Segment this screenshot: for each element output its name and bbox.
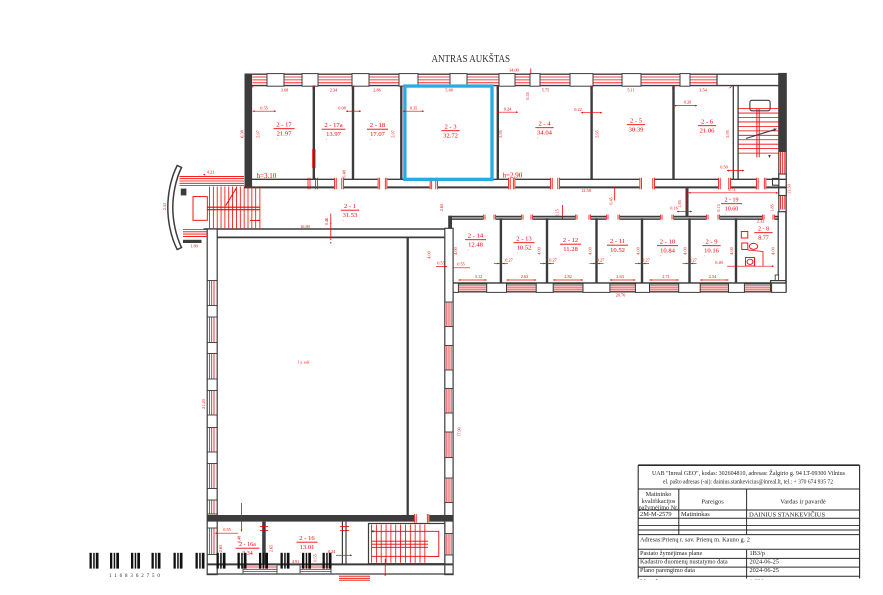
svg-text:2 - 18: 2 - 18	[370, 122, 386, 129]
svg-text:2 - 17a: 2 - 17a	[324, 122, 342, 129]
svg-text:4.00: 4.00	[771, 247, 776, 255]
svg-text:2 - 12: 2 - 12	[563, 237, 578, 244]
svg-text:17.07: 17.07	[370, 131, 386, 138]
svg-text:5.48: 5.48	[445, 88, 453, 93]
svg-text:4.91: 4.91	[292, 559, 300, 564]
svg-text:5.95: 5.95	[498, 130, 503, 138]
svg-text:0.55: 0.55	[525, 92, 530, 100]
svg-text:Plano parengimo data: Plano parengimo data	[640, 567, 695, 574]
svg-text:5.75: 5.75	[542, 88, 550, 93]
svg-text:1168362750: 1168362750	[109, 574, 163, 579]
svg-text:2 - 9: 2 - 9	[705, 239, 718, 246]
svg-text:2 - 4: 2 - 4	[538, 121, 551, 128]
svg-text:0.55: 0.55	[457, 262, 465, 267]
svg-text:13.97: 13.97	[326, 131, 342, 138]
svg-text:2 - 5: 2 - 5	[630, 118, 643, 125]
svg-text:21.06: 21.06	[700, 128, 716, 135]
svg-text:Pareigos: Pareigos	[701, 498, 724, 505]
svg-text:0.55: 0.55	[260, 105, 268, 110]
svg-text:10.16: 10.16	[704, 248, 720, 255]
svg-text:0.27: 0.27	[505, 258, 513, 263]
svg-text:0.27: 0.27	[689, 258, 697, 263]
svg-text:DAINIUS STANKEVIČIUS: DAINIUS STANKEVIČIUS	[749, 511, 826, 519]
svg-text:2.65: 2.65	[218, 545, 223, 553]
svg-text:4.00: 4.00	[729, 247, 734, 255]
svg-text:0.22: 0.22	[574, 107, 582, 112]
svg-text:h=3.10: h=3.10	[257, 172, 277, 180]
svg-text:2 - 8: 2 - 8	[758, 227, 769, 233]
svg-text:10.52: 10.52	[610, 247, 625, 254]
svg-text:ANTRAS AUKŠTAS: ANTRAS AUKŠTAS	[432, 53, 511, 65]
svg-text:13.01: 13.01	[300, 544, 315, 551]
svg-text:2024-06-25: 2024-06-25	[750, 558, 779, 565]
svg-text:2.82: 2.82	[564, 274, 572, 279]
svg-text:2 - 16a: 2 - 16a	[239, 542, 256, 548]
svg-text:2.71: 2.71	[662, 274, 670, 279]
svg-text:1.85: 1.85	[770, 204, 775, 212]
svg-text:5.97: 5.97	[256, 129, 261, 137]
svg-text:16.80: 16.80	[300, 224, 310, 229]
svg-text:2 - 11: 2 - 11	[610, 238, 625, 245]
svg-text:0.15: 0.15	[716, 204, 721, 212]
svg-text:5.73: 5.73	[728, 187, 736, 192]
svg-text:2M-M-2579: 2M-M-2579	[640, 511, 672, 518]
svg-text:Kadastro duomenų nustatymo dat: Kadastro duomenų nustatymo data	[640, 558, 728, 565]
svg-text:5.95: 5.95	[595, 130, 600, 138]
svg-text:2.52: 2.52	[162, 203, 167, 211]
svg-text:13.50: 13.50	[787, 184, 792, 194]
svg-text:0.35: 0.35	[410, 105, 418, 110]
svg-text:32.72: 32.72	[443, 133, 458, 140]
svg-text:0.48: 0.48	[342, 170, 347, 178]
svg-text:21.97: 21.97	[277, 131, 293, 138]
svg-text:5.11: 5.11	[627, 88, 634, 93]
svg-text:Pastato žymėjimas plane: Pastato žymėjimas plane	[640, 550, 702, 557]
svg-text:0.50: 0.50	[720, 165, 728, 170]
svg-text:4.00: 4.00	[683, 247, 688, 255]
svg-text:0.49: 0.49	[715, 260, 723, 265]
svg-text:2 - 6: 2 - 6	[701, 119, 714, 126]
svg-text:2.86: 2.86	[373, 88, 381, 93]
svg-text:2.63: 2.63	[521, 274, 529, 279]
svg-text:0.55: 0.55	[313, 554, 318, 562]
svg-text:2 - 10: 2 - 10	[660, 239, 676, 246]
svg-text:2 - 19: 2 - 19	[725, 198, 739, 204]
svg-text:2 - 16: 2 - 16	[299, 535, 315, 542]
svg-text:1.80: 1.80	[190, 244, 198, 249]
svg-text:10.52: 10.52	[517, 245, 532, 252]
svg-text:30.39: 30.39	[629, 127, 645, 134]
svg-text:2 - 14: 2 - 14	[468, 233, 484, 240]
svg-text:0.45: 0.45	[609, 197, 614, 205]
svg-text:1B3/p: 1B3/p	[750, 550, 765, 557]
svg-text:2.34: 2.34	[330, 88, 338, 93]
svg-text:Adresas:Prienų r. sav. Prienų: Adresas:Prienų r. sav. Prienų m. Kauno g…	[640, 537, 750, 544]
svg-text:34.00: 34.00	[509, 67, 519, 72]
svg-text:2.65: 2.65	[439, 204, 444, 212]
svg-text:0.55: 0.55	[223, 527, 231, 532]
svg-text:17.90: 17.90	[457, 427, 462, 437]
svg-text:0.24: 0.24	[504, 106, 512, 111]
svg-text:2.63: 2.63	[616, 274, 624, 279]
svg-text:2 - 1: 2 - 1	[344, 203, 356, 210]
svg-text:0.08: 0.08	[338, 105, 346, 110]
svg-text:0.55: 0.55	[437, 261, 445, 266]
svg-text:10.60: 10.60	[725, 207, 739, 213]
svg-text:1.85: 1.85	[677, 200, 682, 208]
svg-text:2.32: 2.32	[757, 218, 765, 223]
svg-text:5.95: 5.95	[725, 130, 730, 138]
svg-text:3.68: 3.68	[281, 88, 289, 93]
svg-text:Matininkas: Matininkas	[681, 511, 710, 518]
svg-text:h=2.90: h=2.90	[503, 172, 523, 180]
svg-text:1 a. salė: 1 a. salė	[298, 361, 310, 365]
svg-text:4.00: 4.00	[427, 251, 432, 259]
svg-text:8.77: 8.77	[758, 236, 769, 242]
svg-text:4.21: 4.21	[207, 169, 215, 174]
svg-text:31.53: 31.53	[343, 212, 359, 219]
svg-text:2 - 13: 2 - 13	[516, 236, 532, 243]
svg-text:UAB "Inreal GEO", kodas: 30260: UAB "Inreal GEO", kodas: 302604810, adre…	[652, 469, 845, 477]
svg-text:2.54: 2.54	[709, 274, 717, 279]
svg-text:0.20: 0.20	[684, 99, 692, 104]
svg-text:5.97: 5.97	[391, 129, 396, 137]
svg-text:6.38: 6.38	[240, 130, 245, 138]
svg-text:2 - 17: 2 - 17	[276, 122, 292, 129]
svg-text:21.20: 21.20	[201, 399, 206, 409]
svg-text:0.15: 0.15	[555, 209, 560, 217]
svg-text:20.76: 20.76	[616, 293, 627, 298]
svg-text:3.12: 3.12	[475, 274, 483, 279]
svg-text:0.27: 0.27	[597, 258, 605, 263]
svg-text:12.58: 12.58	[581, 188, 591, 193]
svg-text:0.27: 0.27	[549, 258, 557, 263]
svg-text:2.65: 2.65	[269, 545, 274, 553]
svg-text:2024-06-25: 2024-06-25	[750, 567, 779, 574]
svg-text:4.00: 4.00	[453, 247, 458, 255]
svg-text:3.54: 3.54	[699, 88, 707, 93]
svg-text:10.84: 10.84	[660, 248, 676, 255]
svg-text:Vardas ir pavardė: Vardas ir pavardė	[780, 498, 826, 505]
svg-text:4.00: 4.00	[636, 247, 641, 255]
svg-text:0.46: 0.46	[324, 217, 329, 225]
svg-text:11.28: 11.28	[563, 246, 578, 253]
svg-text:4.00: 4.00	[588, 247, 593, 255]
svg-text:34.04: 34.04	[537, 130, 553, 137]
svg-text:el. pašto adresas (-ai): daini: el. pašto adresas (-ai): dainius.stankev…	[663, 479, 833, 486]
svg-text:2 - 3: 2 - 3	[444, 124, 457, 131]
svg-text:0.27: 0.27	[642, 258, 650, 263]
svg-text:4.00: 4.00	[537, 247, 542, 255]
svg-text:12.48: 12.48	[468, 242, 484, 249]
